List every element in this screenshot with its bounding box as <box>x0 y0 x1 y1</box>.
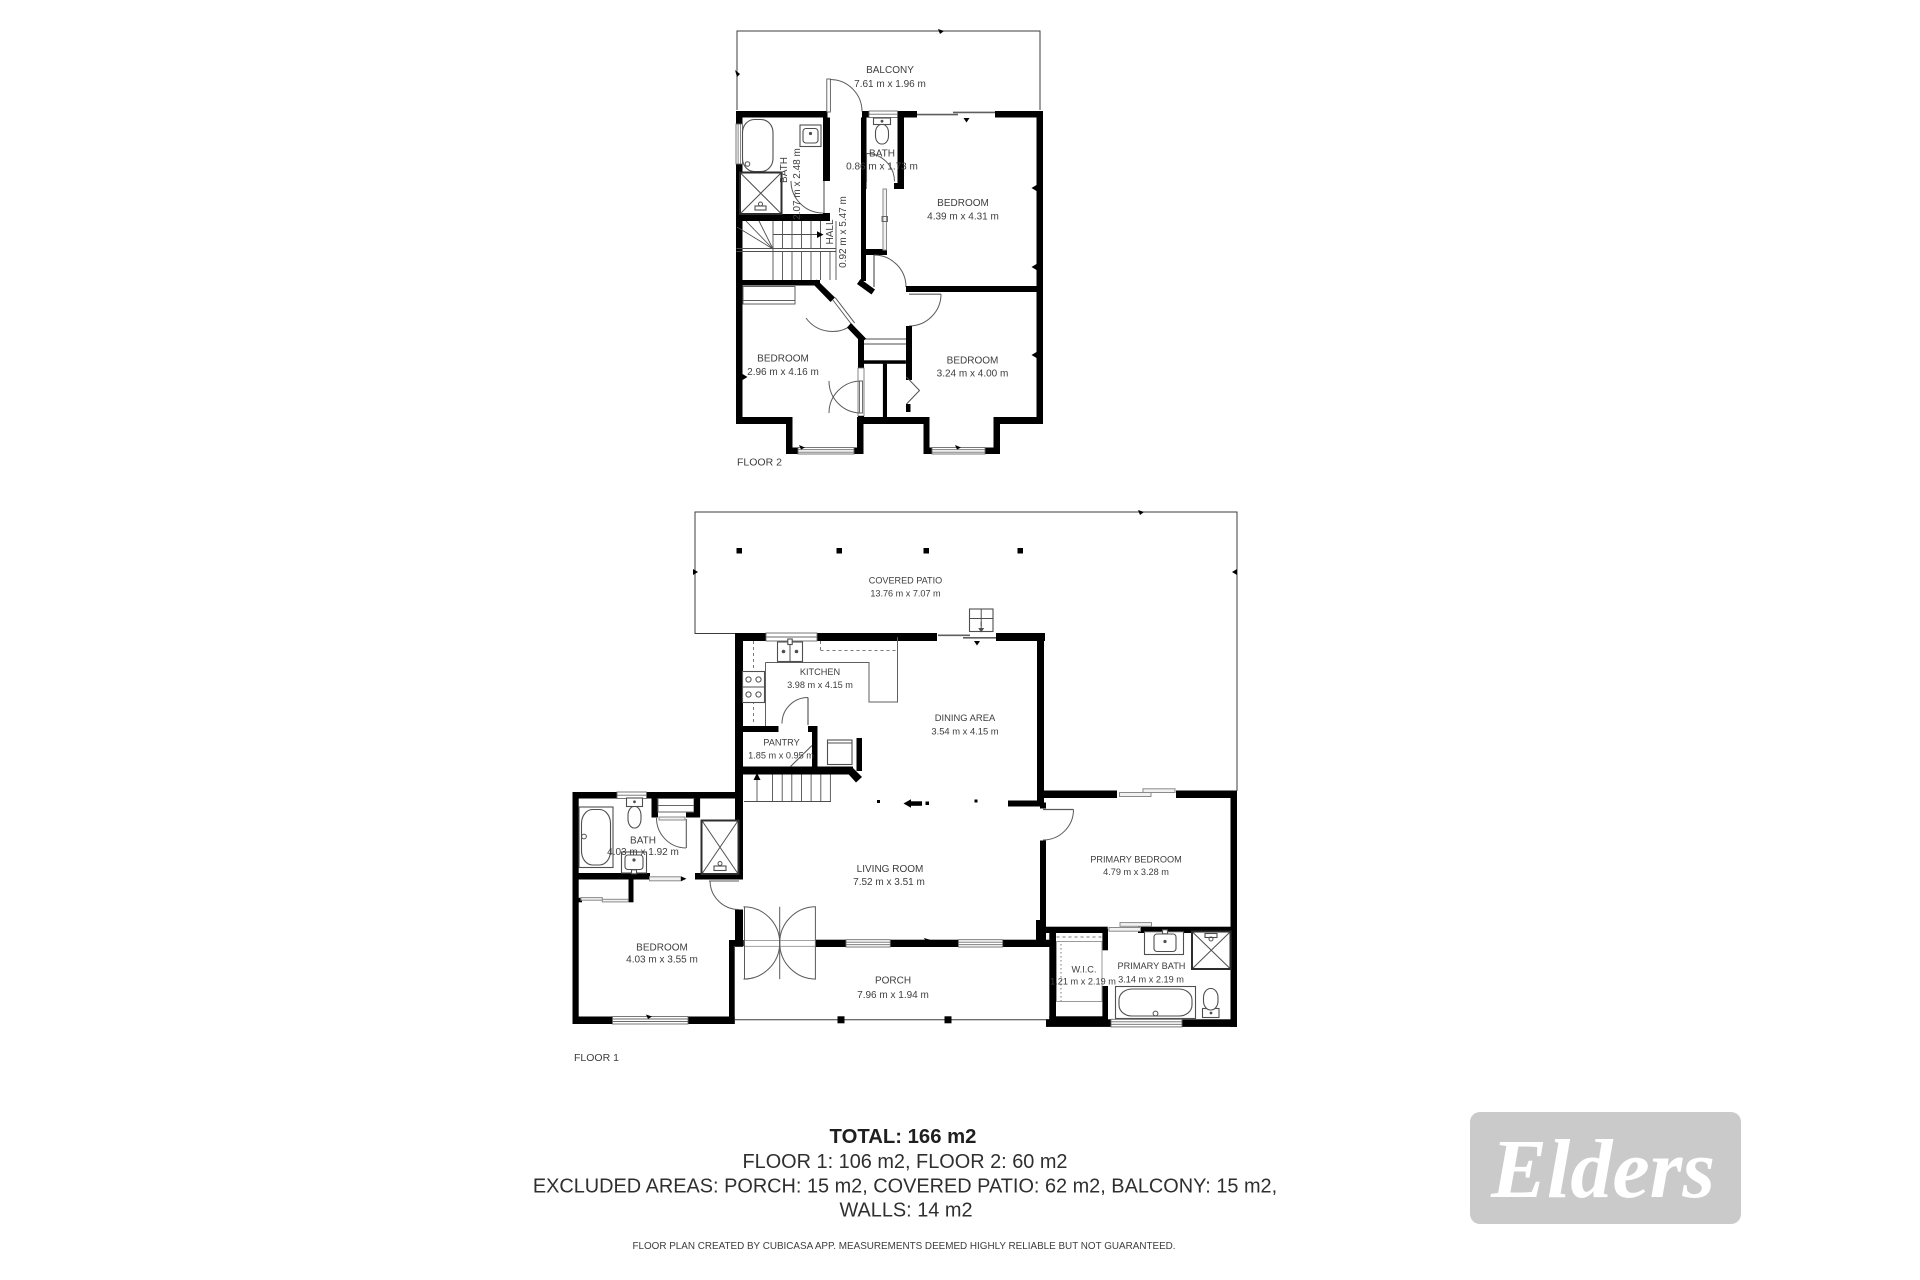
svg-text:PORCH: PORCH <box>875 976 911 987</box>
svg-text:FLOOR 1: 106 m2, FLOOR 2: 60 m: FLOOR 1: 106 m2, FLOOR 2: 60 m2 <box>742 1151 1067 1173</box>
svg-text:PRIMARY BATH: PRIMARY BATH <box>1118 961 1186 971</box>
svg-text:2.96 m x 4.16 m: 2.96 m x 4.16 m <box>747 367 819 378</box>
svg-text:4.79 m x 3.28 m: 4.79 m x 3.28 m <box>1103 867 1169 877</box>
svg-text:KITCHEN: KITCHEN <box>800 667 840 677</box>
svg-text:4.39 m x 4.31 m: 4.39 m x 4.31 m <box>927 212 999 223</box>
svg-text:PANTRY: PANTRY <box>763 738 799 748</box>
svg-text:3.14 m x 2.19 m: 3.14 m x 2.19 m <box>1118 975 1184 985</box>
svg-text:BALCONY: BALCONY <box>866 65 914 76</box>
svg-text:7.52 m x 3.51 m: 7.52 m x 3.51 m <box>853 877 925 888</box>
svg-text:2.07 m x 2.48 m: 2.07 m x 2.48 m <box>792 148 803 220</box>
svg-text:7.96 m x 1.94 m: 7.96 m x 1.94 m <box>857 990 929 1001</box>
svg-text:BEDROOM: BEDROOM <box>947 356 999 367</box>
svg-text:FLOOR PLAN CREATED BY CUBICASA: FLOOR PLAN CREATED BY CUBICASA APP. MEAS… <box>632 1241 1175 1252</box>
svg-text:COVERED PATIO: COVERED PATIO <box>869 576 942 586</box>
svg-text:BEDROOM: BEDROOM <box>757 354 809 365</box>
svg-text:13.76 m x 7.07 m: 13.76 m x 7.07 m <box>870 589 940 599</box>
svg-text:DINING AREA: DINING AREA <box>935 712 996 723</box>
svg-text:7.61 m x 1.96 m: 7.61 m x 1.96 m <box>854 79 926 90</box>
svg-text:0.86 m x 1.73 m: 0.86 m x 1.73 m <box>846 162 918 173</box>
svg-text:1.85 m x 0.95 m: 1.85 m x 0.95 m <box>748 751 814 761</box>
svg-text:BEDROOM: BEDROOM <box>937 198 989 209</box>
svg-text:W.I.C.: W.I.C. <box>1071 965 1096 975</box>
svg-text:LIVING ROOM: LIVING ROOM <box>857 864 924 875</box>
svg-text:FLOOR 2: FLOOR 2 <box>737 457 782 469</box>
svg-text:HALL: HALL <box>825 219 836 244</box>
svg-text:3.98 m x 4.15 m: 3.98 m x 4.15 m <box>787 680 853 690</box>
svg-text:WALLS: 14 m2: WALLS: 14 m2 <box>839 1200 972 1222</box>
svg-text:4.03 m x 1.92 m: 4.03 m x 1.92 m <box>607 847 679 858</box>
svg-text:EXCLUDED AREAS: PORCH: 15 m2,: EXCLUDED AREAS: PORCH: 15 m2, COVERED PA… <box>533 1176 1277 1198</box>
svg-text:TOTAL: 166 m2: TOTAL: 166 m2 <box>830 1126 977 1148</box>
svg-text:3.24 m x 4.00 m: 3.24 m x 4.00 m <box>937 369 1009 380</box>
svg-text:PRIMARY BEDROOM: PRIMARY BEDROOM <box>1090 855 1182 865</box>
svg-text:4.03 m x 3.55 m: 4.03 m x 3.55 m <box>626 955 698 966</box>
svg-text:BATH: BATH <box>779 157 790 183</box>
svg-text:Elders: Elders <box>1490 1123 1715 1216</box>
svg-text:BATH: BATH <box>869 149 895 160</box>
svg-text:FLOOR 1: FLOOR 1 <box>574 1052 619 1064</box>
svg-text:BEDROOM: BEDROOM <box>636 943 688 954</box>
svg-text:1.21 m x 2.19 m: 1.21 m x 2.19 m <box>1050 977 1116 987</box>
svg-text:3.54 m x 4.15 m: 3.54 m x 4.15 m <box>931 726 998 737</box>
svg-text:0.92 m x 5.47 m: 0.92 m x 5.47 m <box>838 196 849 268</box>
svg-text:BATH: BATH <box>630 836 656 847</box>
